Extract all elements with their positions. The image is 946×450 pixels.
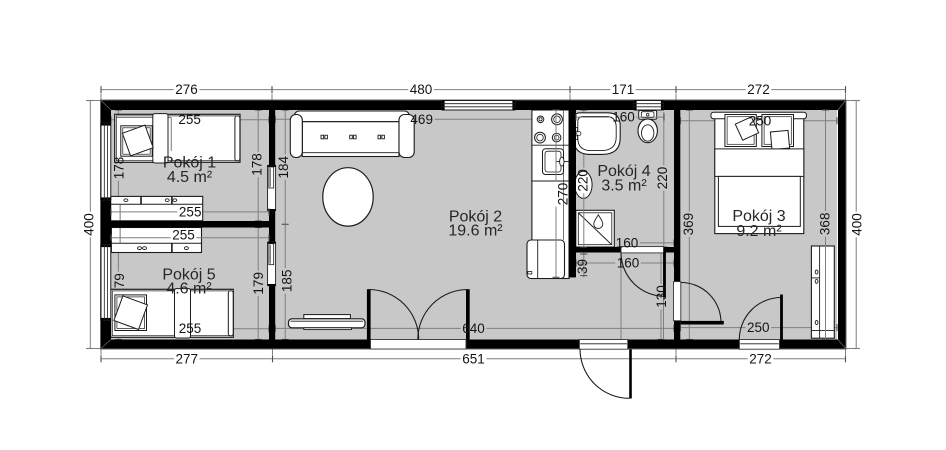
svg-text:270: 270 — [556, 183, 571, 206]
svg-text:130: 130 — [654, 285, 669, 308]
svg-text:160: 160 — [612, 110, 635, 125]
svg-text:178: 178 — [250, 153, 265, 176]
svg-text:184: 184 — [276, 155, 291, 178]
svg-text:651: 651 — [462, 351, 485, 366]
svg-text:255: 255 — [179, 205, 202, 220]
svg-text:19.6 m²: 19.6 m² — [448, 222, 503, 239]
svg-text:400: 400 — [849, 213, 864, 236]
svg-text:220: 220 — [655, 167, 670, 190]
svg-text:250: 250 — [747, 320, 770, 335]
svg-text:640: 640 — [462, 321, 485, 336]
svg-text:276: 276 — [175, 82, 198, 97]
svg-text:255: 255 — [178, 112, 201, 127]
svg-text:368: 368 — [818, 213, 833, 236]
svg-text:39: 39 — [575, 259, 590, 274]
svg-text:469: 469 — [410, 112, 433, 127]
svg-text:4.6 m²: 4.6 m² — [166, 281, 212, 298]
svg-text:185: 185 — [280, 270, 295, 293]
svg-text:400: 400 — [82, 213, 97, 236]
svg-text:3.5 m²: 3.5 m² — [601, 177, 647, 194]
svg-text:250: 250 — [749, 114, 772, 129]
svg-text:369: 369 — [681, 213, 696, 236]
svg-text:171: 171 — [612, 82, 635, 97]
svg-text:160: 160 — [617, 256, 640, 271]
svg-text:220: 220 — [575, 169, 590, 192]
svg-text:4.5 m²: 4.5 m² — [167, 169, 213, 186]
svg-text:178: 178 — [112, 157, 127, 180]
svg-text:9.2 m²: 9.2 m² — [736, 223, 782, 240]
svg-text:160: 160 — [616, 235, 639, 250]
svg-text:272: 272 — [747, 82, 770, 97]
svg-text:255: 255 — [172, 227, 195, 242]
svg-text:255: 255 — [179, 321, 202, 336]
svg-text:277: 277 — [176, 351, 199, 366]
svg-text:179: 179 — [251, 272, 266, 295]
svg-text:272: 272 — [749, 351, 772, 366]
svg-text:480: 480 — [410, 82, 433, 97]
